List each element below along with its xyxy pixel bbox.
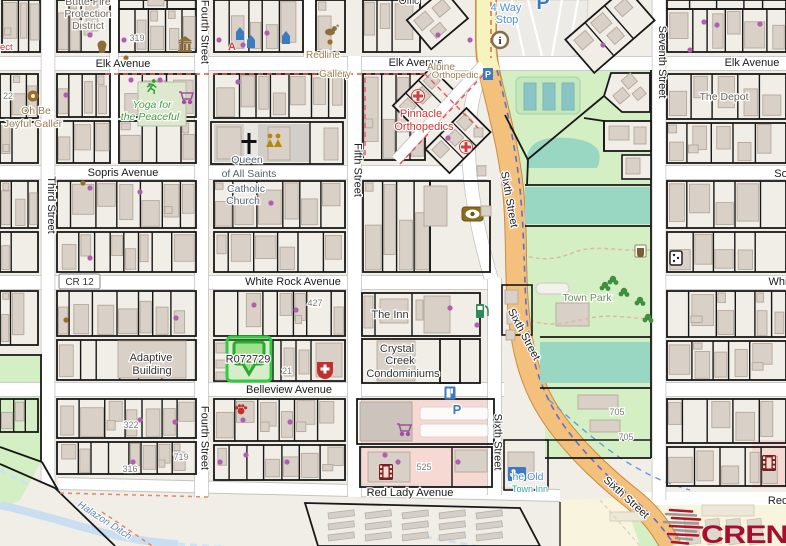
svg-text:CREN: CREN [701, 521, 786, 546]
svg-text:Sopris Avenue: Sopris Avenue [88, 167, 159, 179]
svg-text:the Peaceful: the Peaceful [121, 111, 180, 123]
svg-text:The Inn: The Inn [371, 309, 408, 321]
svg-text:Offic: Offic [399, 0, 419, 7]
svg-text:319: 319 [129, 33, 144, 43]
svg-text:Belleview Avenue: Belleview Avenue [246, 384, 332, 396]
svg-text:Red Lady Avenue: Red Lady Avenue [367, 487, 454, 499]
svg-text:Condominiums: Condominiums [366, 368, 440, 380]
svg-text:Town Inn: Town Inn [512, 484, 548, 494]
svg-text:Crystal: Crystal [380, 343, 414, 355]
svg-text:A: A [228, 41, 236, 53]
svg-text:Red: Red [768, 495, 786, 507]
svg-text:Catholic: Catholic [227, 183, 265, 195]
svg-text:Orthopedic: Orthopedic [432, 70, 479, 81]
svg-text:R072729: R072729 [226, 354, 271, 366]
svg-text:Church: Church [226, 195, 260, 207]
svg-text:So: So [774, 168, 786, 180]
svg-text:Butte Fire: Butte Fire [65, 0, 111, 8]
svg-text:Fourth Street: Fourth Street [199, 406, 211, 470]
svg-text:i: i [498, 35, 501, 47]
svg-text:Redline: Redline [306, 50, 340, 61]
svg-text:P: P [453, 402, 462, 417]
svg-text:4 Way: 4 Way [491, 2, 522, 14]
svg-text:of All Saints: of All Saints [222, 168, 277, 180]
svg-text:Joyful Galler: Joyful Galler [4, 118, 63, 130]
svg-text:Third Street: Third Street [45, 176, 57, 233]
svg-text:Whi: Whi [769, 276, 786, 288]
svg-text:Oh Be: Oh Be [21, 105, 51, 117]
svg-text:Gallery: Gallery [319, 69, 351, 80]
svg-text:719: 719 [173, 452, 188, 462]
svg-text:Seventh Street: Seventh Street [656, 26, 668, 99]
svg-text:Stop: Stop [496, 14, 519, 26]
svg-text:he Old: he Old [513, 471, 544, 483]
svg-text:Fourth Street: Fourth Street [199, 0, 211, 64]
svg-text:Orthopedics: Orthopedics [394, 121, 454, 133]
svg-text:P: P [536, 0, 549, 14]
svg-text:427: 427 [307, 298, 322, 308]
svg-text:Pinnacle: Pinnacle [400, 108, 442, 120]
svg-text:Sixth Street: Sixth Street [492, 414, 504, 471]
svg-text:Yoga for: Yoga for [132, 99, 172, 111]
svg-text:Elk Avenue: Elk Avenue [725, 57, 780, 69]
svg-text:525: 525 [416, 462, 431, 472]
svg-text:Building: Building [132, 365, 171, 377]
svg-text:Creek: Creek [385, 355, 415, 367]
svg-text:Fifth Street: Fifth Street [352, 143, 364, 197]
svg-text:Town Park: Town Park [562, 292, 612, 304]
svg-text:White Rock Avenue: White Rock Avenue [245, 276, 341, 288]
svg-text:705: 705 [618, 432, 633, 442]
svg-text:P: P [485, 70, 491, 80]
svg-text:22: 22 [3, 91, 13, 101]
svg-text:The Depot: The Depot [699, 91, 748, 103]
svg-text:District: District [72, 20, 104, 32]
svg-text:21: 21 [282, 366, 292, 376]
svg-text:Elk Avenue: Elk Avenue [96, 58, 151, 70]
svg-text:Queen: Queen [231, 154, 263, 166]
svg-text:Adaptive: Adaptive [130, 352, 173, 364]
svg-text:316: 316 [122, 464, 137, 474]
svg-text:CR 12: CR 12 [65, 277, 94, 288]
svg-text:705: 705 [609, 407, 624, 417]
svg-text:322: 322 [123, 420, 138, 430]
svg-text:Protection: Protection [64, 8, 111, 20]
svg-text:ect: ect [0, 42, 13, 53]
